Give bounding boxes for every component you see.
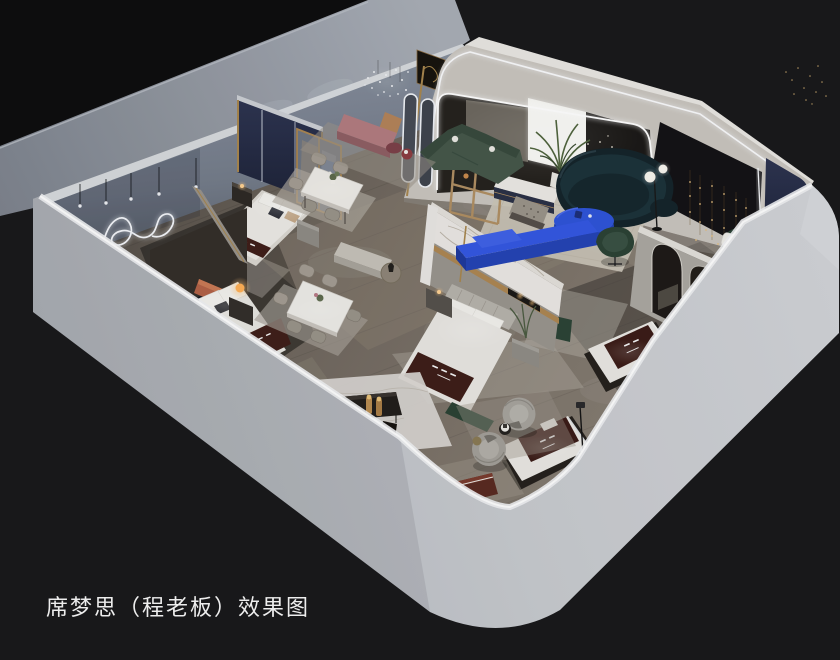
vignette xyxy=(0,0,840,660)
rendering-stage: 席梦思（程老板）效果图 xyxy=(0,0,840,660)
showroom-3d-scene xyxy=(0,0,840,660)
caption-text: 席梦思（程老板）效果图 xyxy=(46,590,310,622)
